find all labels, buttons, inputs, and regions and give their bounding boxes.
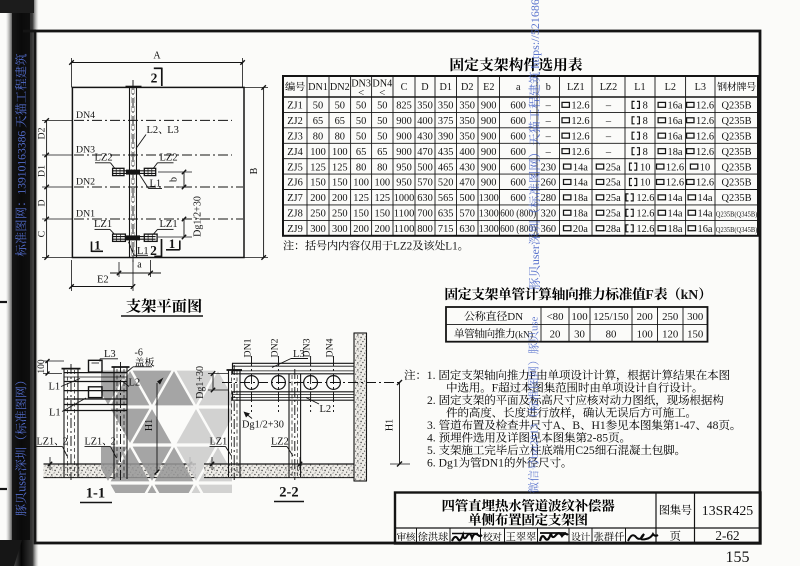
svg-text:120: 120	[662, 328, 678, 340]
svg-text:14a: 14a	[573, 178, 588, 189]
svg-text:630: 630	[417, 193, 433, 204]
svg-text:100: 100	[37, 359, 47, 374]
svg-text:12.6: 12.6	[696, 131, 714, 142]
svg-text:25a: 25a	[606, 193, 621, 204]
svg-text:E2: E2	[483, 82, 494, 93]
svg-text:Q235B: Q235B	[722, 131, 752, 142]
svg-text:12.6: 12.6	[666, 162, 684, 173]
svg-text:900: 900	[481, 131, 497, 142]
svg-text:1100: 1100	[394, 224, 415, 235]
svg-text:user: user	[528, 245, 542, 265]
svg-text:–: –	[545, 116, 552, 127]
svg-text:2-2: 2-2	[279, 485, 298, 501]
svg-text:1.: 1.	[427, 369, 439, 382]
svg-text:C25: C25	[575, 444, 595, 457]
svg-text:Q235B(Q345B): Q235B(Q345B)	[716, 211, 758, 219]
svg-text:125: 125	[375, 193, 391, 204]
svg-text:5.: 5.	[427, 444, 439, 457]
svg-text:<: <	[358, 87, 364, 99]
svg-text:250: 250	[310, 209, 326, 220]
svg-text:565: 565	[438, 193, 454, 204]
svg-text:Dg1/2+30: Dg1/2+30	[193, 196, 204, 237]
svg-text:DN2: DN2	[330, 82, 350, 93]
svg-text:L2: L2	[129, 378, 141, 389]
svg-text:L3: L3	[167, 125, 179, 136]
svg-text:2-85: 2-85	[587, 432, 608, 445]
svg-text:500: 500	[459, 193, 475, 204]
svg-text:DN4: DN4	[76, 110, 95, 121]
svg-text:25a: 25a	[606, 178, 621, 189]
svg-text:250: 250	[332, 209, 348, 220]
svg-text:12.6: 12.6	[571, 101, 589, 112]
svg-text:ZJ1: ZJ1	[287, 101, 303, 112]
svg-text:2-62: 2-62	[715, 528, 739, 543]
svg-text:13SR425: 13SR425	[702, 503, 753, 518]
svg-text:470: 470	[459, 178, 475, 189]
svg-text:16a: 16a	[668, 116, 683, 127]
svg-text:14a: 14a	[698, 193, 713, 204]
svg-text:825: 825	[396, 101, 412, 112]
svg-text:6. Dg1: 6. Dg1	[427, 457, 459, 470]
svg-text:1100: 1100	[394, 209, 415, 220]
svg-text:200: 200	[375, 224, 391, 235]
svg-text:465: 465	[438, 162, 454, 173]
svg-text:12.6: 12.6	[571, 131, 589, 142]
svg-text:25a: 25a	[606, 209, 621, 220]
svg-text:Q235B: Q235B	[722, 101, 752, 112]
svg-text:<80: <80	[547, 311, 564, 323]
svg-text:950: 950	[396, 178, 412, 189]
svg-text:A: A	[553, 419, 562, 432]
svg-text:80: 80	[606, 328, 617, 340]
svg-text:L3: L3	[104, 349, 116, 360]
svg-text:600 (800): 600 (800)	[500, 209, 536, 220]
svg-text:150: 150	[375, 209, 391, 220]
svg-text:–: –	[605, 101, 612, 112]
svg-text:ZJ7: ZJ7	[287, 193, 303, 204]
svg-text:18a: 18a	[573, 209, 588, 220]
svg-text:700: 700	[417, 209, 433, 220]
svg-text:L1: L1	[634, 82, 645, 93]
svg-text:L1: L1	[137, 246, 149, 257]
svg-text:200: 200	[310, 193, 326, 204]
svg-text:ZJ9: ZJ9	[287, 224, 303, 235]
svg-text:400: 400	[417, 116, 433, 127]
svg-text:2: 2	[111, 437, 116, 448]
svg-text:12.6: 12.6	[696, 178, 714, 189]
svg-text:600 (800): 600 (800)	[500, 224, 536, 235]
svg-text:18a: 18a	[573, 193, 588, 204]
svg-text:LZ1: LZ1	[160, 219, 178, 230]
svg-text:Q235B: Q235B	[722, 162, 752, 173]
svg-text:50: 50	[377, 131, 387, 142]
svg-text:14a: 14a	[573, 162, 588, 173]
svg-text:LZ2: LZ2	[271, 437, 289, 448]
svg-text:12.6: 12.6	[571, 147, 589, 158]
svg-text:L1: L1	[445, 241, 457, 253]
svg-text:430: 430	[459, 162, 475, 173]
svg-text:230: 230	[541, 162, 557, 173]
svg-text:LZ2: LZ2	[600, 82, 618, 93]
svg-text:Dg1/2+30: Dg1/2+30	[242, 420, 284, 431]
svg-text:900: 900	[481, 116, 497, 127]
svg-text:A: A	[153, 51, 161, 62]
svg-text:300: 300	[310, 224, 326, 235]
svg-text:ZJ4: ZJ4	[287, 147, 303, 158]
svg-text:800: 800	[417, 224, 433, 235]
svg-text:280: 280	[541, 193, 557, 204]
svg-text:ZJ2: ZJ2	[287, 116, 303, 127]
svg-text:LZ2: LZ2	[160, 153, 178, 164]
svg-text:100: 100	[571, 311, 587, 323]
svg-text:350: 350	[459, 131, 475, 142]
svg-text:L2: L2	[665, 82, 676, 93]
svg-text:80: 80	[313, 131, 323, 142]
svg-text:600: 600	[510, 131, 526, 142]
svg-text:LZ2: LZ2	[95, 153, 113, 164]
svg-text:Q235B: Q235B	[722, 147, 752, 158]
svg-text:635: 635	[438, 209, 454, 220]
svg-text:2: 2	[63, 437, 68, 448]
svg-text:150: 150	[310, 178, 326, 189]
svg-text:1-47: 1-47	[674, 419, 695, 432]
svg-text:28a: 28a	[606, 224, 621, 235]
svg-text:150: 150	[353, 209, 369, 220]
svg-text:50: 50	[356, 131, 366, 142]
svg-text:65: 65	[377, 147, 387, 158]
svg-text:50: 50	[313, 101, 323, 112]
svg-text:65: 65	[313, 116, 323, 127]
svg-text:100: 100	[353, 178, 369, 189]
svg-text:1300: 1300	[479, 209, 499, 220]
svg-text:570: 570	[417, 178, 433, 189]
svg-text:600: 600	[510, 178, 526, 189]
svg-text:12.6: 12.6	[696, 147, 714, 158]
svg-text:520: 520	[438, 178, 454, 189]
svg-text:10: 10	[640, 162, 650, 173]
svg-text:630: 630	[459, 224, 475, 235]
svg-text:1300: 1300	[479, 193, 499, 204]
svg-text:LZ2: LZ2	[393, 241, 412, 253]
svg-text:LZ1: LZ1	[567, 82, 585, 93]
svg-text:715: 715	[438, 224, 454, 235]
svg-text:2: 2	[150, 243, 157, 258]
svg-text:390: 390	[438, 131, 454, 142]
svg-text:–: –	[545, 147, 552, 158]
svg-text:14a: 14a	[698, 209, 713, 220]
svg-text:Q235B: Q235B	[722, 178, 752, 189]
svg-text:user: user	[14, 471, 28, 491]
svg-text:DN4: DN4	[325, 338, 336, 357]
svg-text:14a: 14a	[668, 193, 683, 204]
svg-text:600: 600	[510, 147, 526, 158]
svg-text:–: –	[605, 131, 612, 142]
svg-text:L2: L2	[147, 125, 159, 136]
svg-text:https://521686.: https://521686.	[528, 0, 542, 72]
svg-text:1: 1	[169, 236, 176, 251]
svg-text:L1: L1	[49, 382, 61, 393]
svg-text:DN1: DN1	[308, 82, 328, 93]
svg-text:12.6: 12.6	[666, 178, 684, 189]
svg-text:D2: D2	[37, 127, 48, 139]
svg-text:LZ1: LZ1	[37, 437, 55, 448]
svg-text:L2: L2	[320, 404, 332, 415]
svg-text:10: 10	[640, 178, 650, 189]
svg-text:8: 8	[643, 131, 648, 142]
svg-text:D1: D1	[440, 82, 452, 93]
svg-text:use: use	[529, 316, 541, 331]
svg-text:D2: D2	[461, 82, 473, 93]
svg-text:B: B	[249, 167, 260, 174]
svg-text:12.6: 12.6	[571, 116, 589, 127]
svg-text:25a: 25a	[606, 162, 621, 173]
svg-text:12.6: 12.6	[637, 209, 655, 220]
svg-text:600: 600	[510, 162, 526, 173]
svg-text:-6: -6	[135, 348, 143, 359]
svg-text:kN: kN	[681, 287, 699, 302]
svg-text:200: 200	[353, 224, 369, 235]
svg-text:H1: H1	[592, 419, 606, 432]
svg-text:F: F	[645, 287, 653, 302]
svg-text:435: 435	[438, 147, 454, 158]
svg-text:ZJ5: ZJ5	[287, 162, 303, 173]
svg-text:–: –	[545, 131, 552, 142]
svg-text:b: b	[546, 82, 551, 93]
svg-text:350: 350	[459, 116, 475, 127]
svg-text:900: 900	[481, 101, 497, 112]
svg-text:DN2: DN2	[76, 176, 95, 187]
svg-text:4.: 4.	[427, 432, 439, 445]
svg-text:B: B	[572, 419, 580, 432]
svg-text:DN: DN	[507, 311, 523, 323]
svg-text:30: 30	[574, 328, 585, 340]
svg-text:900: 900	[481, 162, 497, 173]
svg-text:900: 900	[396, 131, 412, 142]
svg-text:200: 200	[332, 193, 348, 204]
svg-text:b: b	[169, 177, 180, 182]
svg-text:–: –	[545, 101, 552, 112]
svg-text:150: 150	[687, 328, 703, 340]
svg-text:16a: 16a	[668, 131, 683, 142]
svg-text:2: 2	[151, 70, 158, 85]
svg-text:14a: 14a	[668, 209, 683, 220]
svg-text:320: 320	[541, 209, 557, 220]
svg-text:100: 100	[637, 328, 653, 340]
svg-text:H1: H1	[144, 419, 155, 431]
svg-text:ZJ6: ZJ6	[287, 178, 303, 189]
svg-text:13910163386: 13910163386	[16, 128, 29, 195]
svg-text:DN1: DN1	[243, 338, 254, 357]
svg-text:16a: 16a	[668, 101, 683, 112]
svg-text:C: C	[37, 231, 48, 238]
svg-text:50: 50	[356, 116, 366, 127]
svg-text:150: 150	[332, 178, 348, 189]
svg-text:260: 260	[541, 178, 557, 189]
svg-text:L1: L1	[49, 408, 61, 419]
svg-text:8: 8	[643, 116, 648, 127]
svg-text:E2: E2	[97, 275, 109, 286]
svg-text:12.6: 12.6	[696, 116, 714, 127]
svg-text:125: 125	[332, 162, 348, 173]
svg-text:48: 48	[707, 419, 719, 432]
svg-text:50: 50	[377, 101, 387, 112]
svg-text:125: 125	[353, 193, 369, 204]
svg-text:100: 100	[332, 147, 348, 158]
svg-text:900: 900	[396, 147, 412, 158]
svg-text:10: 10	[700, 162, 710, 173]
svg-text:DN2: DN2	[270, 338, 281, 357]
svg-text:12.6: 12.6	[696, 101, 714, 112]
svg-text:900: 900	[396, 116, 412, 127]
svg-text:2.: 2.	[427, 394, 439, 407]
svg-text:DN1: DN1	[481, 457, 504, 470]
svg-text:Q235B: Q235B	[722, 116, 752, 127]
svg-text:125: 125	[310, 162, 326, 173]
svg-text:155: 155	[726, 549, 750, 566]
svg-text:470: 470	[417, 147, 433, 158]
svg-text:600: 600	[510, 116, 526, 127]
svg-text:300: 300	[332, 224, 348, 235]
svg-text:350: 350	[459, 101, 475, 112]
svg-text:Dg1+30: Dg1+30	[195, 366, 206, 399]
svg-text:LZ1: LZ1	[210, 437, 228, 448]
svg-text:H1: H1	[385, 419, 396, 431]
svg-text:50: 50	[377, 116, 387, 127]
svg-text:80: 80	[356, 162, 366, 173]
svg-text:LZ1: LZ1	[85, 437, 103, 448]
svg-text:bzt2013: bzt2013	[529, 424, 541, 459]
svg-text:DN3: DN3	[76, 144, 95, 155]
svg-text:65: 65	[335, 116, 345, 127]
svg-text:570: 570	[459, 209, 475, 220]
svg-text:Q235B(Q345B): Q235B(Q345B)	[716, 226, 758, 234]
svg-text:a: a	[137, 260, 142, 271]
svg-text:L1: L1	[150, 179, 162, 190]
svg-text:ZJ3: ZJ3	[287, 131, 303, 142]
svg-text:12.6: 12.6	[637, 224, 655, 235]
svg-text:80: 80	[335, 131, 345, 142]
svg-text:360: 360	[541, 224, 557, 235]
svg-text:900: 900	[481, 147, 497, 158]
svg-text:350: 350	[438, 101, 454, 112]
svg-text:400: 400	[459, 147, 475, 158]
svg-text:350: 350	[417, 101, 433, 112]
svg-text:950: 950	[396, 162, 412, 173]
svg-text:65: 65	[356, 147, 366, 158]
svg-text:<: <	[379, 87, 385, 99]
svg-text:100: 100	[375, 178, 391, 189]
svg-text:ZJ8: ZJ8	[287, 209, 303, 220]
svg-text:3.: 3.	[427, 419, 439, 432]
svg-text:16a: 16a	[698, 224, 713, 235]
svg-text:–: –	[605, 116, 612, 127]
svg-text:600: 600	[510, 101, 526, 112]
svg-text:375: 375	[438, 116, 454, 127]
svg-text:1: 1	[94, 238, 101, 253]
svg-text:D: D	[37, 199, 48, 206]
svg-text:20: 20	[550, 328, 561, 340]
svg-text:Q235B: Q235B	[722, 193, 752, 204]
svg-text:L3: L3	[293, 349, 305, 360]
svg-text:600: 600	[510, 193, 526, 204]
svg-text:1300: 1300	[479, 224, 499, 235]
svg-text:20a: 20a	[573, 224, 588, 235]
svg-text:F: F	[492, 382, 499, 395]
svg-text:C: C	[401, 82, 408, 93]
svg-text:8: 8	[643, 147, 648, 158]
svg-text:100: 100	[310, 147, 326, 158]
svg-text:LZ1: LZ1	[94, 219, 112, 230]
svg-text:125/150: 125/150	[593, 311, 628, 323]
svg-text:a: a	[516, 82, 521, 93]
svg-text:D: D	[421, 82, 428, 93]
svg-text:D1: D1	[37, 165, 48, 177]
svg-text:18a: 18a	[668, 224, 683, 235]
svg-text:900: 900	[481, 178, 497, 189]
svg-text:18a: 18a	[668, 147, 683, 158]
svg-text:250: 250	[662, 311, 678, 323]
svg-text:8: 8	[643, 101, 648, 112]
svg-text:80: 80	[377, 162, 387, 173]
svg-text:L3: L3	[695, 82, 706, 93]
svg-text:500: 500	[417, 162, 433, 173]
svg-text:50: 50	[356, 101, 366, 112]
svg-text:DN1: DN1	[76, 208, 95, 219]
svg-text:12.6: 12.6	[637, 193, 655, 204]
svg-text:300: 300	[687, 311, 703, 323]
svg-text:–: –	[605, 147, 612, 158]
svg-text:50: 50	[335, 101, 345, 112]
svg-text:200: 200	[637, 311, 653, 323]
svg-text:430: 430	[417, 131, 433, 142]
svg-text:1-1: 1-1	[86, 486, 105, 502]
svg-text:1000: 1000	[394, 193, 415, 204]
